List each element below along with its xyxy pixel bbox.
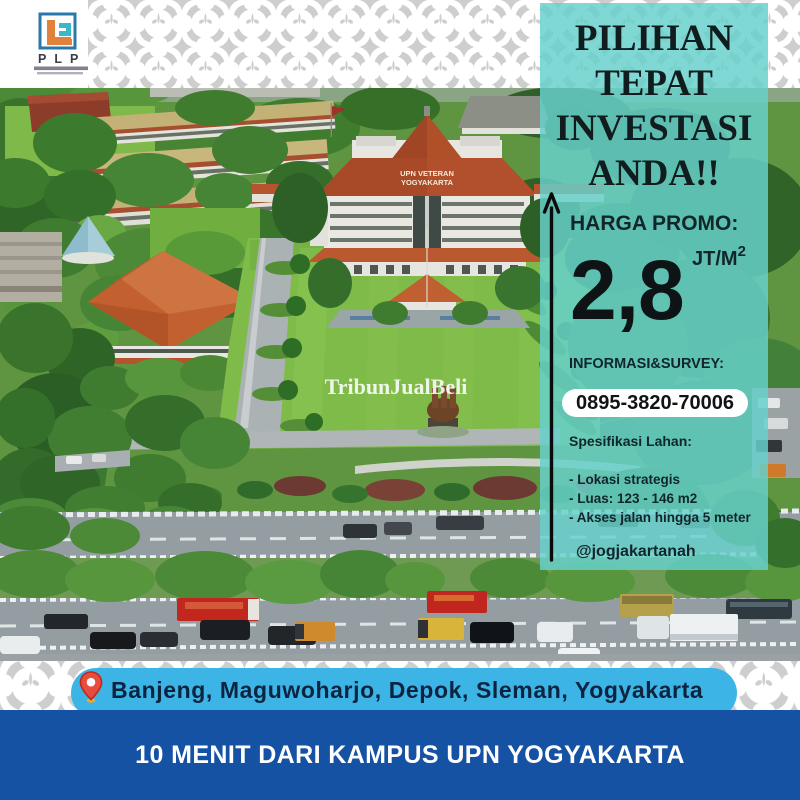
svg-text:YOGYAKARTA: YOGYAKARTA <box>401 178 454 187</box>
svg-text:TribunJualBeli: TribunJualBeli <box>325 374 468 399</box>
svg-text:UPN VETERAN: UPN VETERAN <box>400 169 454 178</box>
svg-text:PLP: PLP <box>38 52 86 66</box>
